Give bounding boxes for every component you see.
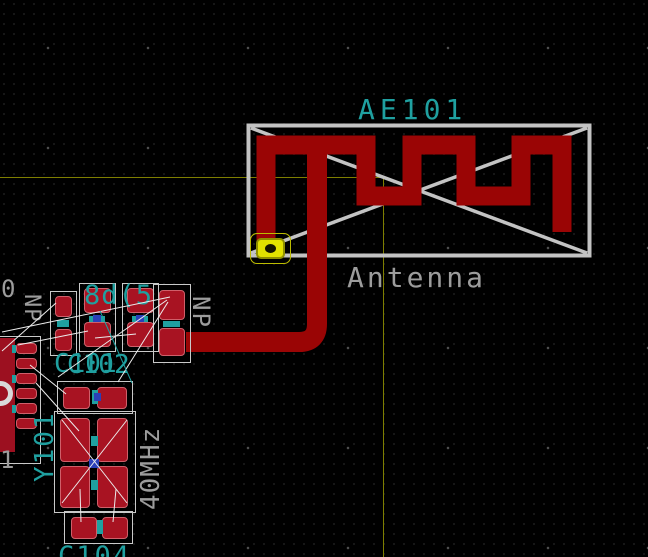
value-label-40mhz[interactable]: 40MHz <box>136 427 166 510</box>
component-pad[interactable] <box>55 329 72 351</box>
component-pad[interactable] <box>16 388 37 399</box>
component-pad[interactable] <box>97 387 127 409</box>
antenna-ref-label[interactable]: AE101 <box>358 93 467 126</box>
paste-mark <box>12 375 16 383</box>
component-pad[interactable] <box>97 418 128 462</box>
edge-label-zero[interactable]: 0 <box>1 275 15 303</box>
component-pad[interactable] <box>159 290 185 320</box>
paste-mark <box>91 480 98 490</box>
np-label-left[interactable]: NP <box>19 294 44 323</box>
edge-label-one[interactable]: 1 <box>0 446 14 474</box>
np-label-right[interactable]: NP <box>187 296 215 329</box>
component-pad[interactable] <box>159 328 185 356</box>
ref-label-y101[interactable]: Y101 <box>30 411 60 482</box>
component-pad[interactable] <box>63 387 90 409</box>
component-pad[interactable] <box>84 322 111 347</box>
component-pad[interactable] <box>55 296 72 317</box>
paste-mark <box>91 436 98 446</box>
copper-traces[interactable] <box>186 145 562 342</box>
via-mark <box>94 393 101 401</box>
component-pad[interactable] <box>71 517 97 539</box>
component-pad[interactable] <box>16 343 37 354</box>
pad-drill-hole <box>265 244 276 253</box>
paste-mark <box>57 320 69 327</box>
via-mark <box>93 315 101 322</box>
via-mark <box>89 459 99 468</box>
component-pad[interactable] <box>97 466 128 508</box>
pcb-canvas[interactable]: AE101 Antenna NP NP 8d(5 C101 C102 Y101 … <box>0 0 648 557</box>
ref-label-c104[interactable]: C104 <box>58 541 131 557</box>
component-pad[interactable] <box>102 517 128 539</box>
antenna-value-label[interactable]: Antenna <box>347 261 486 294</box>
via-mark <box>136 315 144 322</box>
component-pad[interactable] <box>16 358 37 369</box>
paste-mark <box>97 520 103 534</box>
paste-mark <box>12 405 16 413</box>
component-pad[interactable] <box>127 322 154 347</box>
component-pad[interactable] <box>16 373 37 384</box>
paste-mark <box>12 345 16 353</box>
component-pad[interactable] <box>60 418 90 462</box>
overlapping-ref-labels[interactable]: 8d(5 <box>84 280 153 311</box>
paste-mark <box>163 321 180 327</box>
component-pad[interactable] <box>60 466 90 508</box>
ref-label-c102[interactable]: C102 <box>67 350 130 380</box>
